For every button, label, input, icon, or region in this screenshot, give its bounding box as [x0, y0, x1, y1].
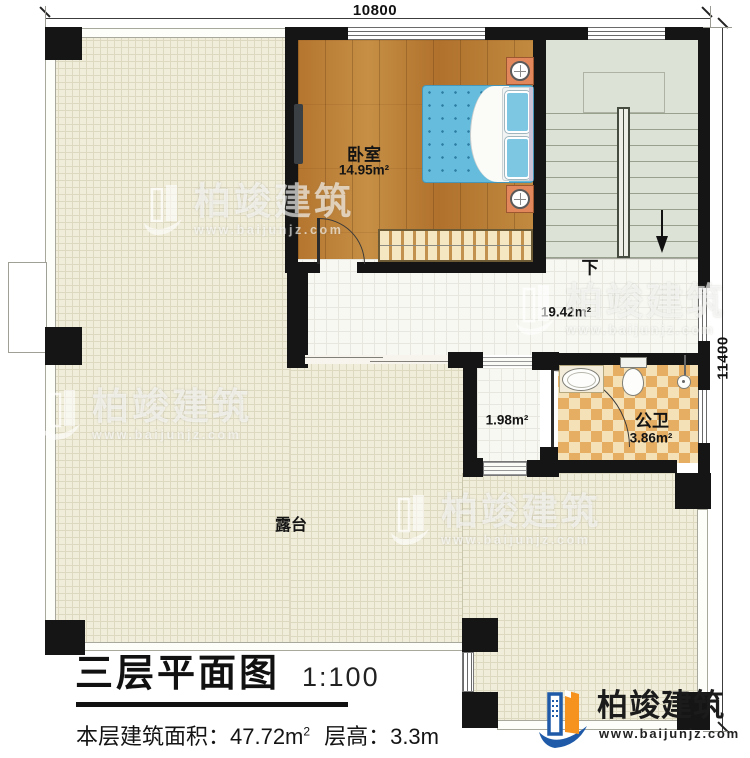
- corridor-area-label: 1.98m²: [486, 413, 529, 428]
- shower-hose: [684, 355, 686, 377]
- stair-railing-inner-line: [623, 109, 624, 256]
- bedroom-door-leaf: [317, 218, 320, 264]
- terrace-connector-window: [462, 652, 474, 692]
- pillow: [505, 91, 530, 133]
- hallway-wall-bottom-seg2: [532, 352, 559, 370]
- bathroom-right-window: [698, 390, 710, 443]
- right-dimension-value: 11400: [715, 336, 732, 379]
- column-terrace-mid-lower: [462, 692, 498, 728]
- hallway-terrace-sliding-door: [305, 355, 448, 364]
- column-top-left: [45, 27, 82, 60]
- corridor-terrace-sliding-door: [483, 461, 527, 476]
- tv: [294, 104, 303, 164]
- corridor-wall-bottom-seg2: [527, 460, 559, 477]
- stair-bottom-edge: [546, 258, 698, 259]
- floor-height-text: 层高：3.3m: [324, 724, 439, 749]
- brand-logo-icon: [535, 686, 591, 750]
- extension-line: [45, 6, 46, 27]
- stair-direction-arrow-head: [656, 236, 668, 253]
- bedroom-wall-bottom-right: [357, 262, 546, 273]
- wall-right-upper: [698, 27, 710, 288]
- wall-right-mid: [698, 341, 710, 390]
- left-wall-ledge: [8, 262, 47, 353]
- shower-head: [677, 375, 691, 389]
- terrace-label: 露台: [275, 511, 307, 535]
- brand-url: www.baijunjz.com: [599, 726, 740, 741]
- bathroom-label: 公卫: [635, 407, 669, 432]
- nightstand: [506, 185, 534, 213]
- corridor-wall-left: [463, 368, 477, 463]
- terrace-floor-middle: [290, 363, 463, 648]
- column-left-middle: [45, 327, 82, 365]
- brand-logo: 柏竣建筑 www.baijunjz.com: [535, 684, 750, 754]
- extension-line: [710, 6, 711, 27]
- bathroom-area-label: 3.86m²: [630, 431, 673, 446]
- toilet-tank: [620, 357, 647, 368]
- terrace-section-line: [462, 473, 463, 619]
- title-underline: [76, 702, 348, 707]
- hallway-wall-left: [287, 262, 308, 368]
- slider-line: [370, 361, 448, 362]
- toilet-bowl: [622, 368, 644, 396]
- stairs-down-label: 下: [582, 254, 599, 279]
- stair-railing: [617, 107, 630, 258]
- lamp-icon: [510, 61, 530, 81]
- floor-plan-canvas: 卧室 14.95m² 19.42m² 1.98m² 公卫 3.86m² 露台 下…: [0, 0, 750, 758]
- lamp-icon: [510, 189, 530, 209]
- floor-area-text: 本层建筑面积：47.72m: [76, 724, 303, 749]
- scale-label: 1:100: [302, 662, 380, 693]
- bedroom-wall-right: [533, 27, 546, 273]
- hallway-right-window: [698, 288, 710, 341]
- terrace-parapet-right-lower: [697, 509, 708, 694]
- corridor-top-opening: [483, 357, 532, 367]
- wall-right-lower: [698, 443, 710, 477]
- page-title: 三层平面图: [75, 655, 280, 693]
- terrace-parapet-bottom: [56, 642, 498, 651]
- hallway-wall-bottom-seg1: [448, 352, 483, 368]
- sink: [562, 368, 600, 391]
- column-bottom-left: [45, 620, 85, 655]
- brand-name: 柏竣建筑: [597, 690, 725, 721]
- corridor-wall-bottom-seg1: [463, 458, 483, 477]
- bedroom-area-label: 14.95m²: [339, 163, 389, 178]
- extension-line: [703, 27, 732, 28]
- bedroom-top-window: [348, 27, 485, 40]
- bed-headboard: [529, 87, 533, 181]
- floor-area-sup: 2: [303, 725, 310, 739]
- column-right-middle: [675, 473, 711, 509]
- hallway-area-label: 19.42m²: [541, 305, 591, 320]
- terrace-floor-left: [51, 33, 290, 648]
- pillow: [505, 137, 530, 179]
- sink-basin: [567, 372, 596, 388]
- hallway-floor: [290, 259, 698, 355]
- stairwell-top-window: [588, 27, 665, 40]
- wardrobe: [378, 229, 533, 262]
- bathroom-wall-bottom: [559, 460, 677, 473]
- column-terrace-mid-upper: [462, 618, 498, 652]
- nightstand: [506, 57, 534, 85]
- slider-line: [305, 357, 383, 358]
- top-dimension-value: 10800: [353, 2, 397, 19]
- stair-direction-arrow-stem: [661, 210, 663, 238]
- floor-info-line: 本层建筑面积：47.72m2层高：3.3m: [76, 719, 439, 751]
- bathroom-door-leaf: [551, 370, 554, 447]
- shower-head-dot: [682, 380, 685, 383]
- title-block: 三层平面图 1:100: [75, 655, 380, 693]
